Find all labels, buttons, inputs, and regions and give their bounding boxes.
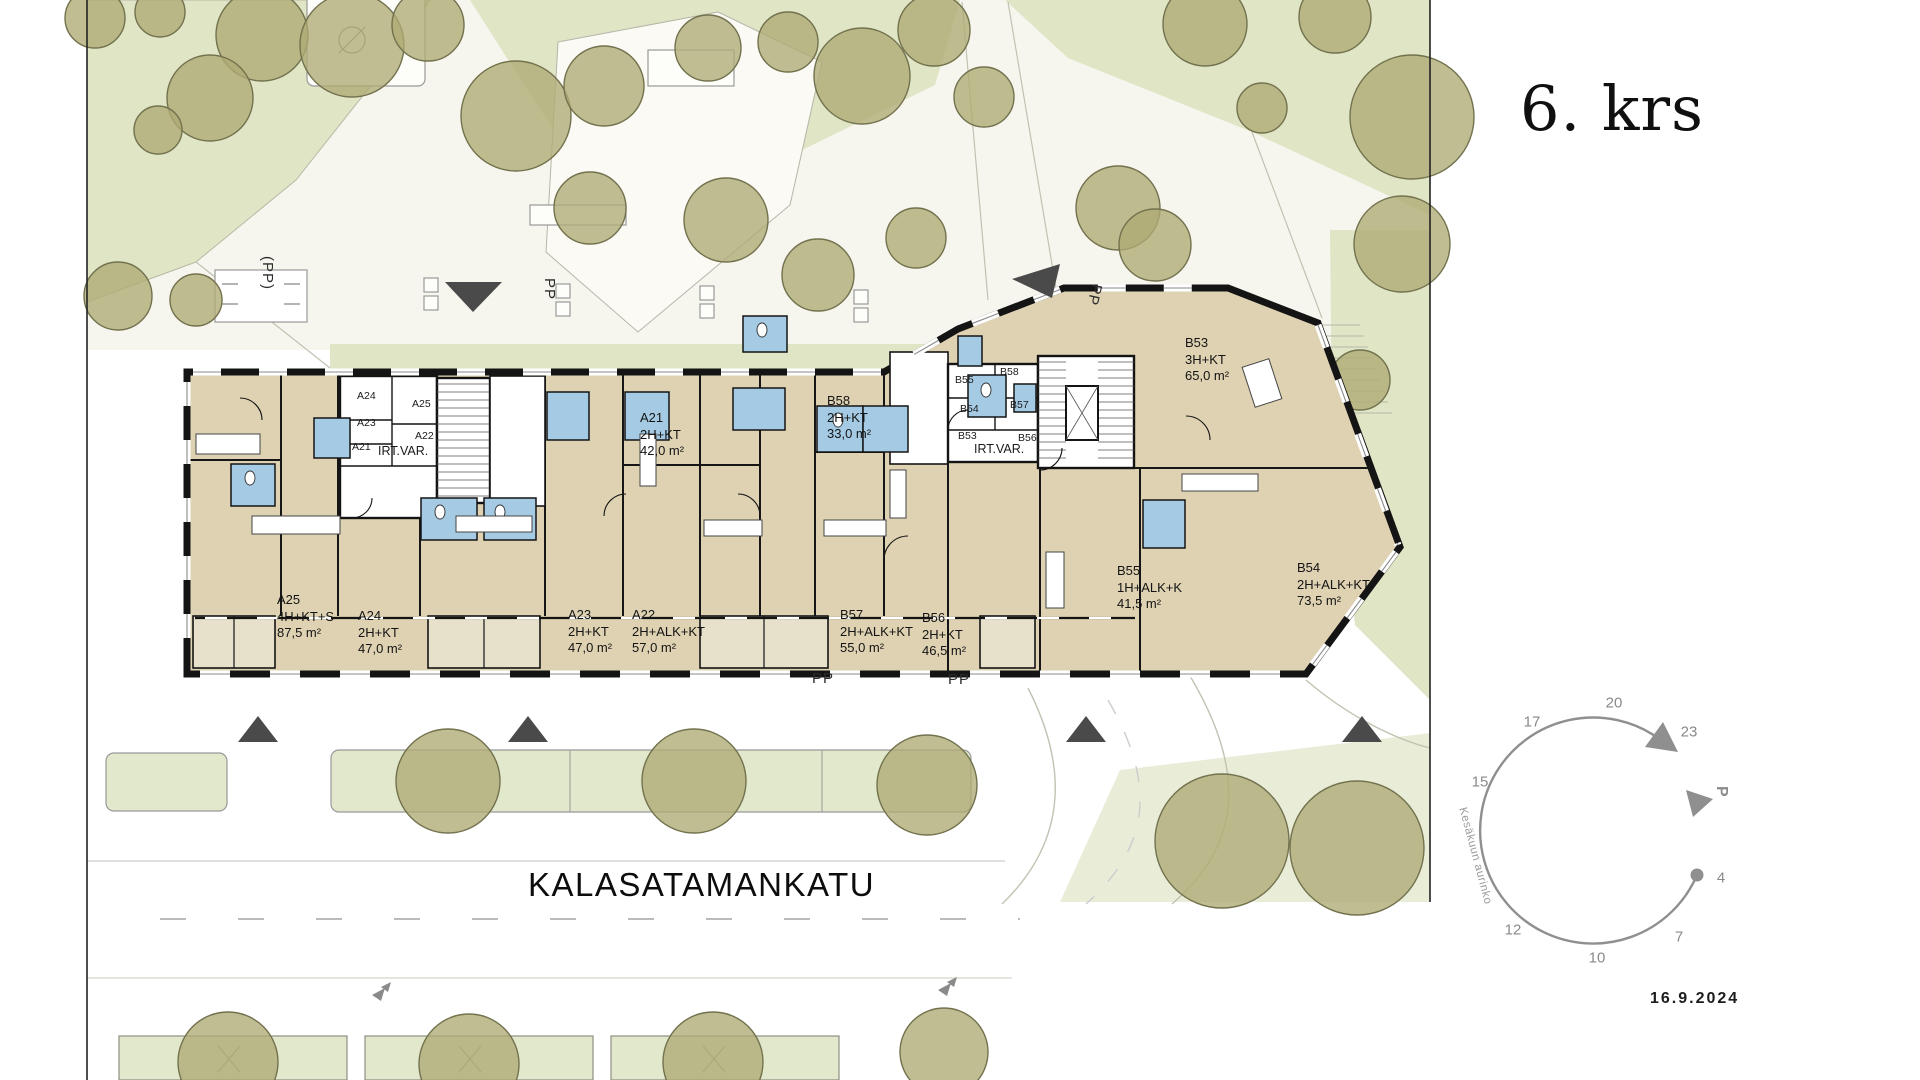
storage-area-label: IRT.VAR.	[974, 442, 1024, 456]
apartment-label: A22 2H+ALK+KT 57,0 m²	[632, 607, 705, 657]
bike-parking-marker: PP	[541, 278, 558, 300]
apartment-area: 65,0 m²	[1185, 368, 1229, 385]
apartment-area: 73,5 m²	[1297, 593, 1370, 610]
sun-hour-label: 17	[1524, 714, 1541, 731]
apartment-label: B55 1H+ALK+K 41,5 m²	[1117, 563, 1182, 613]
entrance-arrow-icon	[1066, 716, 1106, 742]
floor-plan-page: A25 4H+KT+S 87,5 m² A24 2H+KT 47,0 m² A2…	[0, 0, 1920, 1080]
entrance-arrow-icon	[1342, 716, 1382, 742]
sunrise-dot	[1691, 869, 1704, 882]
storage-room-label: A25	[412, 398, 431, 410]
apartment-id: A22	[632, 607, 705, 624]
apartment-area: 57,0 m²	[632, 640, 705, 657]
sun-diagram	[1480, 718, 1713, 944]
apartment-type: 2H+ALK+KT	[1297, 577, 1370, 594]
apartment-id: A25	[277, 592, 334, 609]
apartment-type: 2H+KT	[640, 427, 684, 444]
apartment-id: A23	[568, 607, 612, 624]
road-marking-icon	[938, 977, 957, 996]
apartment-type: 2H+KT	[922, 627, 966, 644]
parking-marker: (PP)	[259, 256, 276, 290]
bike-parking-marker: PP	[812, 670, 834, 687]
apartment-id: A21	[640, 410, 684, 427]
entrance-arrow-icon	[508, 716, 548, 742]
storage-room-label: B53	[958, 430, 977, 442]
apartment-type: 2H+KT	[568, 624, 612, 641]
sun-hour-label: 23	[1681, 724, 1698, 741]
sun-hour-label: 7	[1675, 929, 1683, 946]
storage-room-label: A22	[415, 430, 434, 442]
apartment-id: B58	[827, 393, 871, 410]
apartment-type: 4H+KT+S	[277, 609, 334, 626]
apartment-label: B54 2H+ALK+KT 73,5 m²	[1297, 560, 1370, 610]
apartment-area: 47,0 m²	[568, 640, 612, 657]
apartment-label: B58 2H+KT 33,0 m²	[827, 393, 871, 443]
sun-hour-label: 10	[1589, 950, 1606, 967]
sun-hour-label: 20	[1606, 695, 1623, 712]
apartment-area: 41,5 m²	[1117, 596, 1182, 613]
entrance-arrow-icon	[238, 716, 278, 742]
apartment-label: B53 3H+KT 65,0 m²	[1185, 335, 1229, 385]
apartment-label: B56 2H+KT 46,5 m²	[922, 610, 966, 660]
apartment-label: B57 2H+ALK+KT 55,0 m²	[840, 607, 913, 657]
apartment-label: A24 2H+KT 47,0 m²	[358, 608, 402, 658]
floor-title: 6. krs	[1520, 72, 1704, 145]
storage-room-label: B55	[955, 374, 974, 386]
plan-date: 16.9.2024	[1650, 990, 1739, 1008]
apartment-type: 2H+ALK+KT	[840, 624, 913, 641]
storage-room-label: A23	[357, 417, 376, 429]
road-marking-icon	[372, 982, 391, 1001]
sun-hour-label: 12	[1505, 922, 1522, 939]
apartment-type: 1H+ALK+K	[1117, 580, 1182, 597]
storage-room-label: B57	[1010, 399, 1029, 411]
storage-room-label: A24	[357, 390, 376, 402]
apartment-id: A24	[358, 608, 402, 625]
storage-room-label: A21	[352, 441, 371, 453]
apartment-id: B53	[1185, 335, 1229, 352]
apartment-type: 2H+ALK+KT	[632, 624, 705, 641]
storage-room-label: B54	[960, 403, 979, 415]
apartment-label: A23 2H+KT 47,0 m²	[568, 607, 612, 657]
apartment-area: 33,0 m²	[827, 426, 871, 443]
apartment-id: B55	[1117, 563, 1182, 580]
apartment-type: 2H+KT	[358, 625, 402, 642]
apartment-area: 42,0 m²	[640, 443, 684, 460]
apartment-id: B56	[922, 610, 966, 627]
stair-core-left	[437, 378, 490, 503]
north-arrow-icon	[1686, 790, 1713, 817]
sun-arrowhead-icon	[1645, 722, 1678, 752]
apartment-id: B57	[840, 607, 913, 624]
storage-area-label: IRT.VAR.	[378, 444, 428, 458]
apartment-type: 3H+KT	[1185, 352, 1229, 369]
street-name: KALASATAMANKATU	[528, 866, 875, 904]
stair-core-right	[1038, 356, 1134, 468]
apartment-label: A21 2H+KT 42,0 m²	[640, 410, 684, 460]
apartment-area: 46,5 m²	[922, 643, 966, 660]
sun-hour-label: 15	[1472, 774, 1489, 791]
lobby-left	[490, 376, 545, 506]
bike-parking-marker: PP	[948, 671, 970, 688]
sun-hour-label: 4	[1717, 870, 1725, 887]
north-label: P	[1712, 786, 1730, 797]
apartment-type: 2H+KT	[827, 410, 871, 427]
apartment-label: A25 4H+KT+S 87,5 m²	[277, 592, 334, 642]
storage-room-label: B58	[1000, 366, 1019, 378]
apartment-area: 47,0 m²	[358, 641, 402, 658]
site-plan-drawing	[0, 0, 1920, 1080]
apartment-area: 87,5 m²	[277, 625, 334, 642]
apartment-id: B54	[1297, 560, 1370, 577]
apartment-area: 55,0 m²	[840, 640, 913, 657]
